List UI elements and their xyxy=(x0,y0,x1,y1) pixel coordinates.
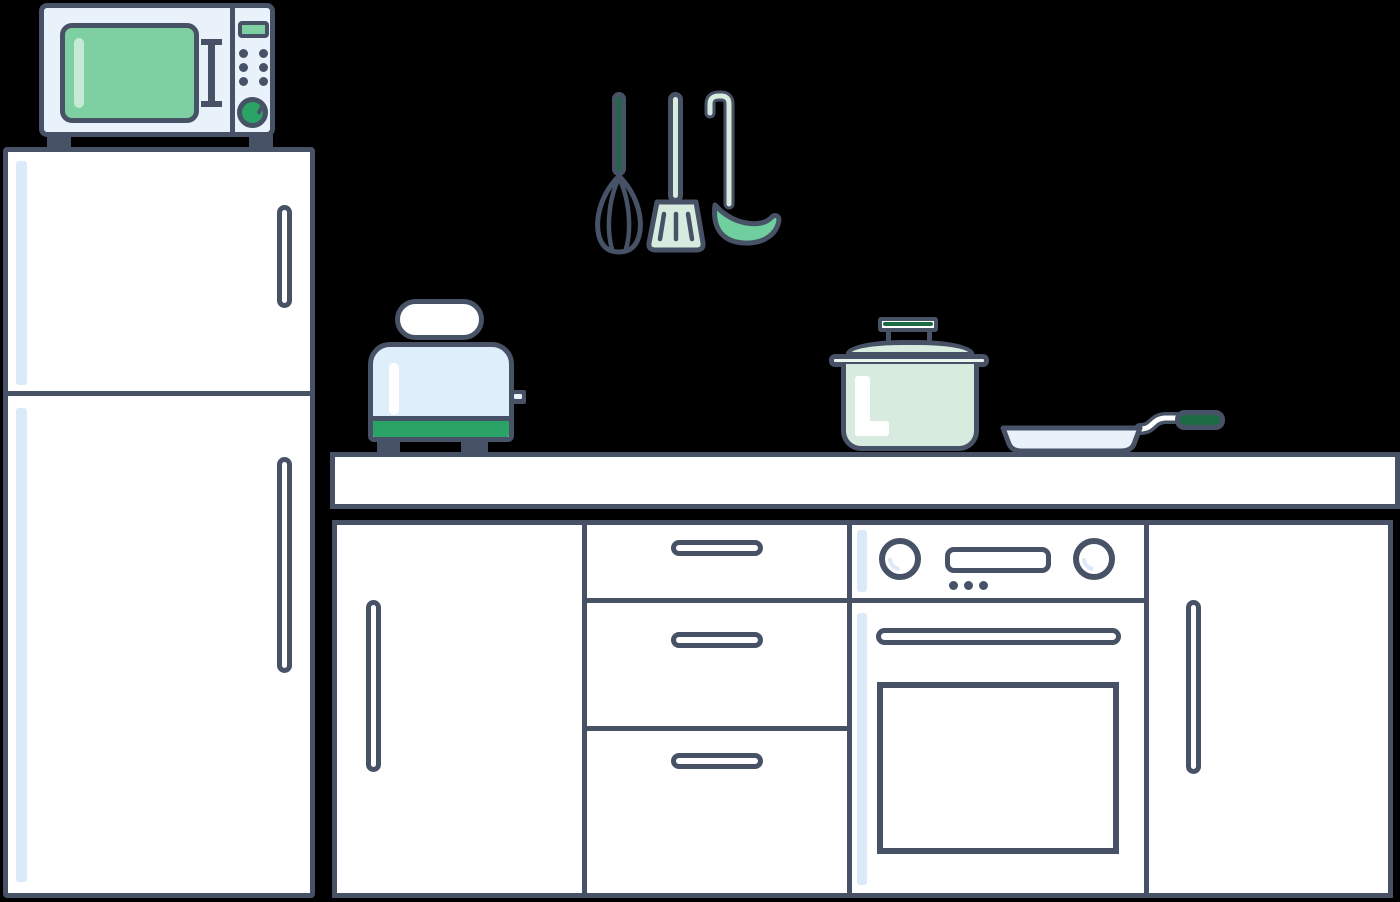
freezer-handle xyxy=(277,205,292,308)
highlight-strip xyxy=(16,408,27,882)
microwave-door-handle xyxy=(208,43,215,103)
microwave-display xyxy=(238,21,269,38)
dial-notch xyxy=(256,103,265,115)
indicator-dot xyxy=(964,581,973,590)
toaster-foot xyxy=(377,438,400,453)
cabinet-left-handle xyxy=(366,600,381,772)
knob-reflection xyxy=(883,542,917,576)
bread-slice xyxy=(395,299,484,340)
kitchen-scene xyxy=(0,0,1400,902)
drawer xyxy=(587,726,847,893)
cabinet-right-door xyxy=(1144,525,1388,893)
oven xyxy=(847,525,1144,893)
pot-body xyxy=(841,364,979,451)
toaster-reflection xyxy=(389,363,399,415)
cabinet-left-door xyxy=(337,525,582,893)
countertop xyxy=(330,452,1400,509)
microwave-button xyxy=(239,49,248,58)
spatula-icon xyxy=(649,95,703,251)
fridge-door-divider xyxy=(8,391,310,396)
drawer-handle xyxy=(671,753,763,769)
fridge-handle xyxy=(277,457,292,673)
microwave-foot xyxy=(47,135,71,149)
cabinet-run xyxy=(332,520,1393,898)
drawer xyxy=(587,525,847,598)
cabinet-right-handle xyxy=(1186,600,1201,774)
microwave-button xyxy=(259,63,268,72)
microwave-dial-icon xyxy=(237,97,268,128)
window-reflection xyxy=(74,38,84,108)
ladle-icon xyxy=(710,96,779,243)
oven-window xyxy=(877,682,1119,854)
microwave-button xyxy=(239,77,248,86)
highlight-strip xyxy=(857,530,867,592)
microwave-window xyxy=(60,23,199,123)
lid-knob-fill xyxy=(883,322,933,326)
lever-dot xyxy=(514,394,522,399)
oven-knob-icon xyxy=(879,538,921,580)
microwave-button xyxy=(259,49,268,58)
oven-indicator-dots xyxy=(949,581,988,590)
refrigerator xyxy=(3,147,315,898)
indicator-dot xyxy=(979,581,988,590)
oven-knob-icon xyxy=(1073,538,1115,580)
drawer-handle xyxy=(671,632,763,648)
microwave-button xyxy=(259,77,268,86)
frying-pan-icon xyxy=(1003,413,1223,452)
highlight-strip xyxy=(16,161,27,385)
highlight-strip xyxy=(857,613,867,885)
drawer-handle xyxy=(671,540,763,556)
handle-cap xyxy=(201,39,222,45)
drawer xyxy=(587,598,847,726)
pot-reflection xyxy=(855,421,889,436)
oven-door-handle xyxy=(876,628,1121,645)
oven-display xyxy=(945,547,1051,573)
handle-cap xyxy=(201,101,222,107)
microwave-body xyxy=(39,3,275,137)
toaster-foot xyxy=(461,438,488,453)
panel-divider xyxy=(230,8,235,132)
drawer-stack xyxy=(582,525,847,893)
microwave-button-grid xyxy=(239,49,268,86)
lid-knob xyxy=(878,317,938,332)
toaster-band xyxy=(373,416,509,437)
knob-reflection xyxy=(1077,542,1111,576)
toaster-body xyxy=(368,342,514,442)
indicator-dot xyxy=(949,581,958,590)
microwave-foot xyxy=(249,135,273,149)
oven-control-panel xyxy=(852,525,1144,598)
microwave-button xyxy=(239,63,248,72)
oven-door xyxy=(852,598,1144,893)
whisk-icon xyxy=(598,95,641,253)
